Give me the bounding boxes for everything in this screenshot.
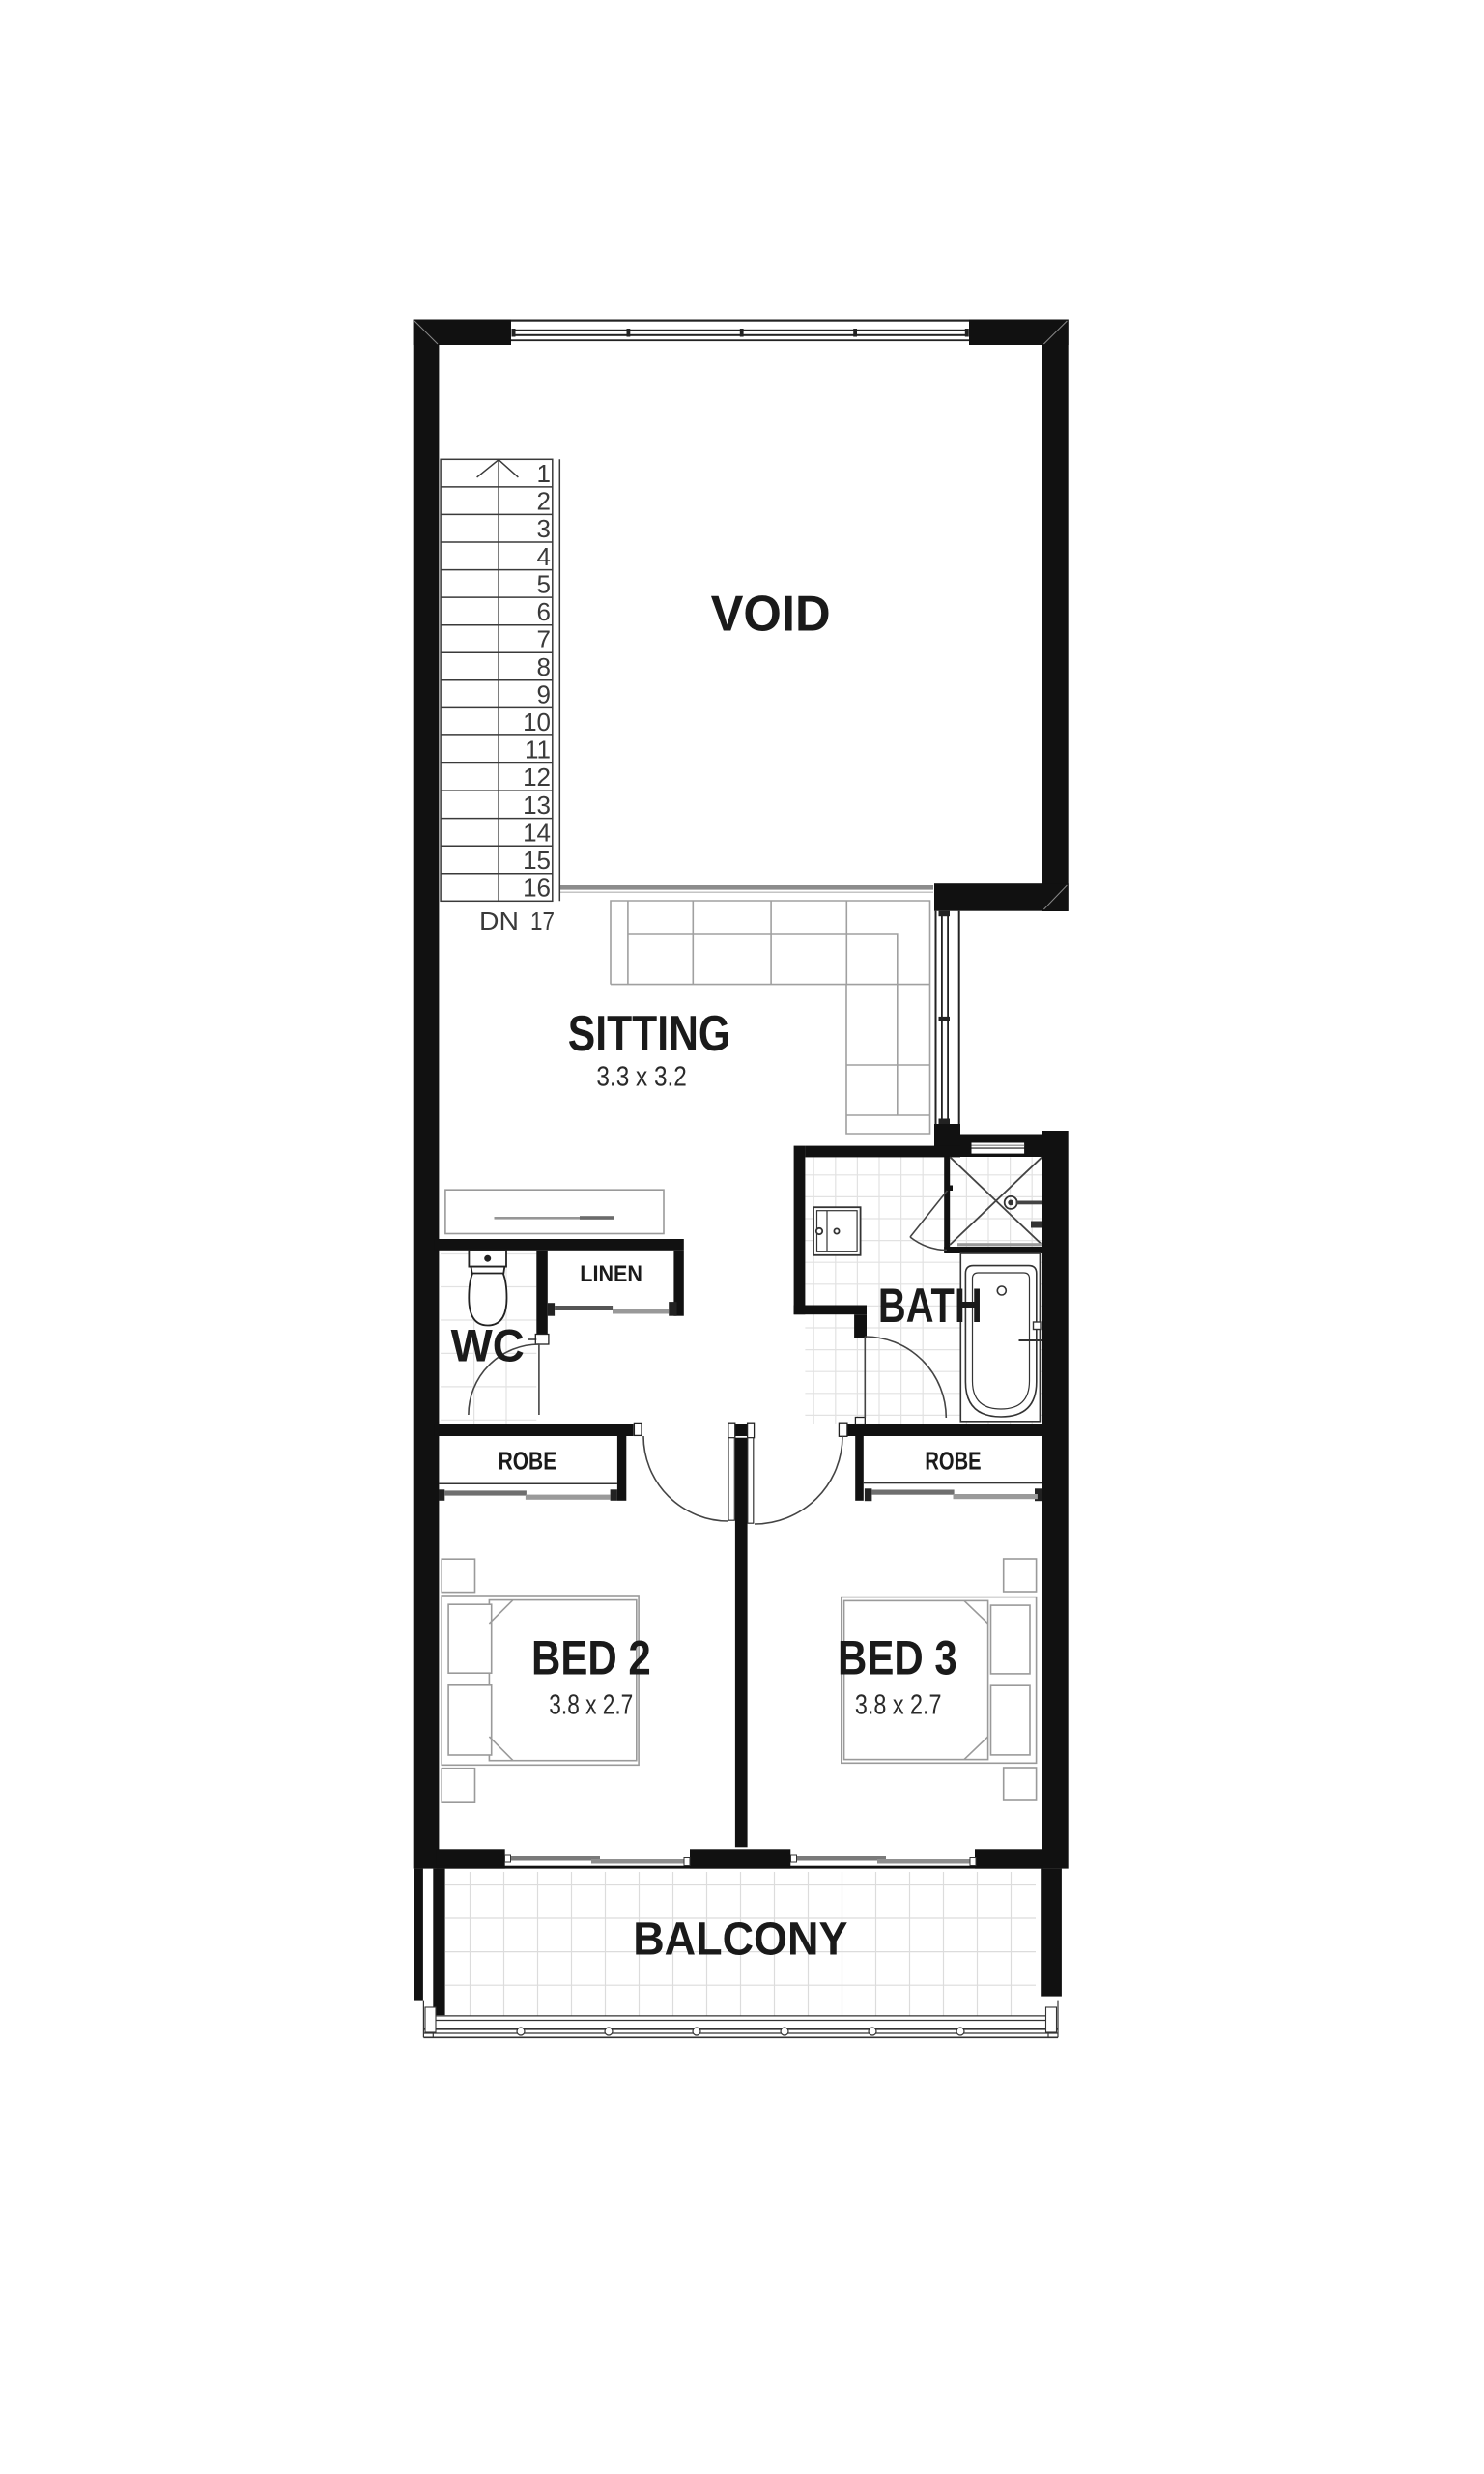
svg-text:1: 1	[537, 459, 551, 488]
svg-text:7: 7	[537, 624, 551, 653]
svg-text:BED 2: BED 2	[531, 1630, 651, 1684]
svg-text:11: 11	[525, 735, 551, 764]
svg-text:3: 3	[537, 514, 551, 543]
svg-text:13: 13	[523, 791, 551, 820]
svg-text:5: 5	[537, 569, 551, 598]
svg-text:3.3 x 3.2: 3.3 x 3.2	[596, 1061, 686, 1092]
svg-text:VOID: VOID	[711, 587, 831, 643]
svg-text:4: 4	[537, 542, 551, 571]
svg-text:BED 3: BED 3	[838, 1630, 957, 1684]
svg-text:3.8 x 2.7: 3.8 x 2.7	[855, 1690, 942, 1721]
svg-text:14: 14	[523, 818, 551, 847]
svg-text:DN: DN	[479, 906, 519, 935]
svg-text:ROBE: ROBE	[499, 1448, 557, 1475]
svg-text:15: 15	[523, 846, 551, 875]
svg-text:ROBE: ROBE	[925, 1448, 981, 1475]
svg-text:8: 8	[537, 652, 551, 681]
svg-text:SITTING: SITTING	[568, 1006, 730, 1062]
svg-text:16: 16	[523, 874, 551, 903]
svg-text:10: 10	[523, 707, 551, 736]
svg-text:BALCONY: BALCONY	[633, 1914, 847, 1966]
svg-text:3.8 x 2.7: 3.8 x 2.7	[549, 1690, 633, 1721]
svg-text:9: 9	[537, 680, 551, 709]
svg-text:WC: WC	[451, 1320, 525, 1371]
svg-text:12: 12	[523, 762, 551, 791]
svg-text:17: 17	[530, 906, 555, 935]
svg-text:BATH: BATH	[878, 1279, 983, 1333]
svg-text:2: 2	[537, 487, 551, 516]
svg-text:LINEN: LINEN	[580, 1261, 642, 1287]
svg-text:6: 6	[537, 597, 551, 626]
